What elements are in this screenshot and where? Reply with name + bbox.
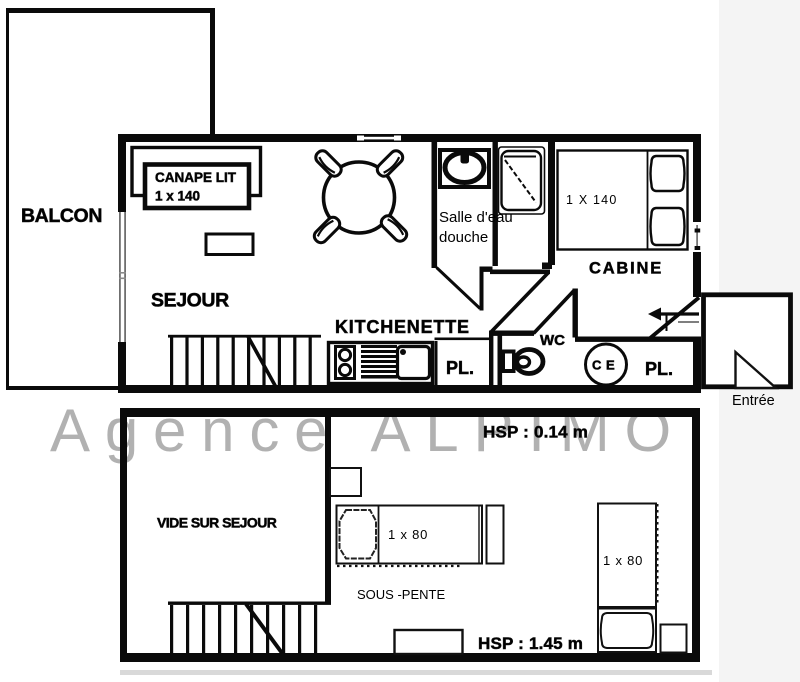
svg-text:PL.: PL. bbox=[645, 359, 673, 379]
svg-text:Agence ALPIMO: Agence ALPIMO bbox=[50, 397, 686, 464]
svg-text:HSP : 1.45 m: HSP : 1.45 m bbox=[478, 634, 583, 653]
svg-text:Salle d'eau: Salle d'eau bbox=[439, 209, 513, 226]
svg-text:1 x 80: 1 x 80 bbox=[388, 527, 428, 542]
svg-text:WC: WC bbox=[540, 332, 565, 349]
svg-text:CE: CE bbox=[592, 358, 619, 373]
svg-text:1 x 80: 1 x 80 bbox=[603, 553, 643, 568]
svg-text:KITCHENETTE: KITCHENETTE bbox=[335, 317, 470, 337]
svg-text:1 X 140: 1 X 140 bbox=[566, 193, 618, 207]
svg-text:douche: douche bbox=[439, 229, 488, 246]
svg-text:Entrée: Entrée bbox=[732, 393, 775, 409]
svg-text:SEJOUR: SEJOUR bbox=[151, 290, 229, 312]
svg-text:PL.: PL. bbox=[446, 358, 474, 378]
svg-text:CABINE: CABINE bbox=[589, 260, 663, 278]
svg-text:BALCON: BALCON bbox=[21, 205, 102, 227]
svg-text:HSP : 0.14 m: HSP : 0.14 m bbox=[483, 423, 588, 442]
svg-text:VIDE SUR SEJOUR: VIDE SUR SEJOUR bbox=[157, 515, 277, 531]
svg-text:1 x 140: 1 x 140 bbox=[155, 189, 200, 204]
svg-text:CANAPE LIT: CANAPE LIT bbox=[155, 170, 237, 185]
svg-text:SOUS -PENTE: SOUS -PENTE bbox=[357, 587, 445, 602]
